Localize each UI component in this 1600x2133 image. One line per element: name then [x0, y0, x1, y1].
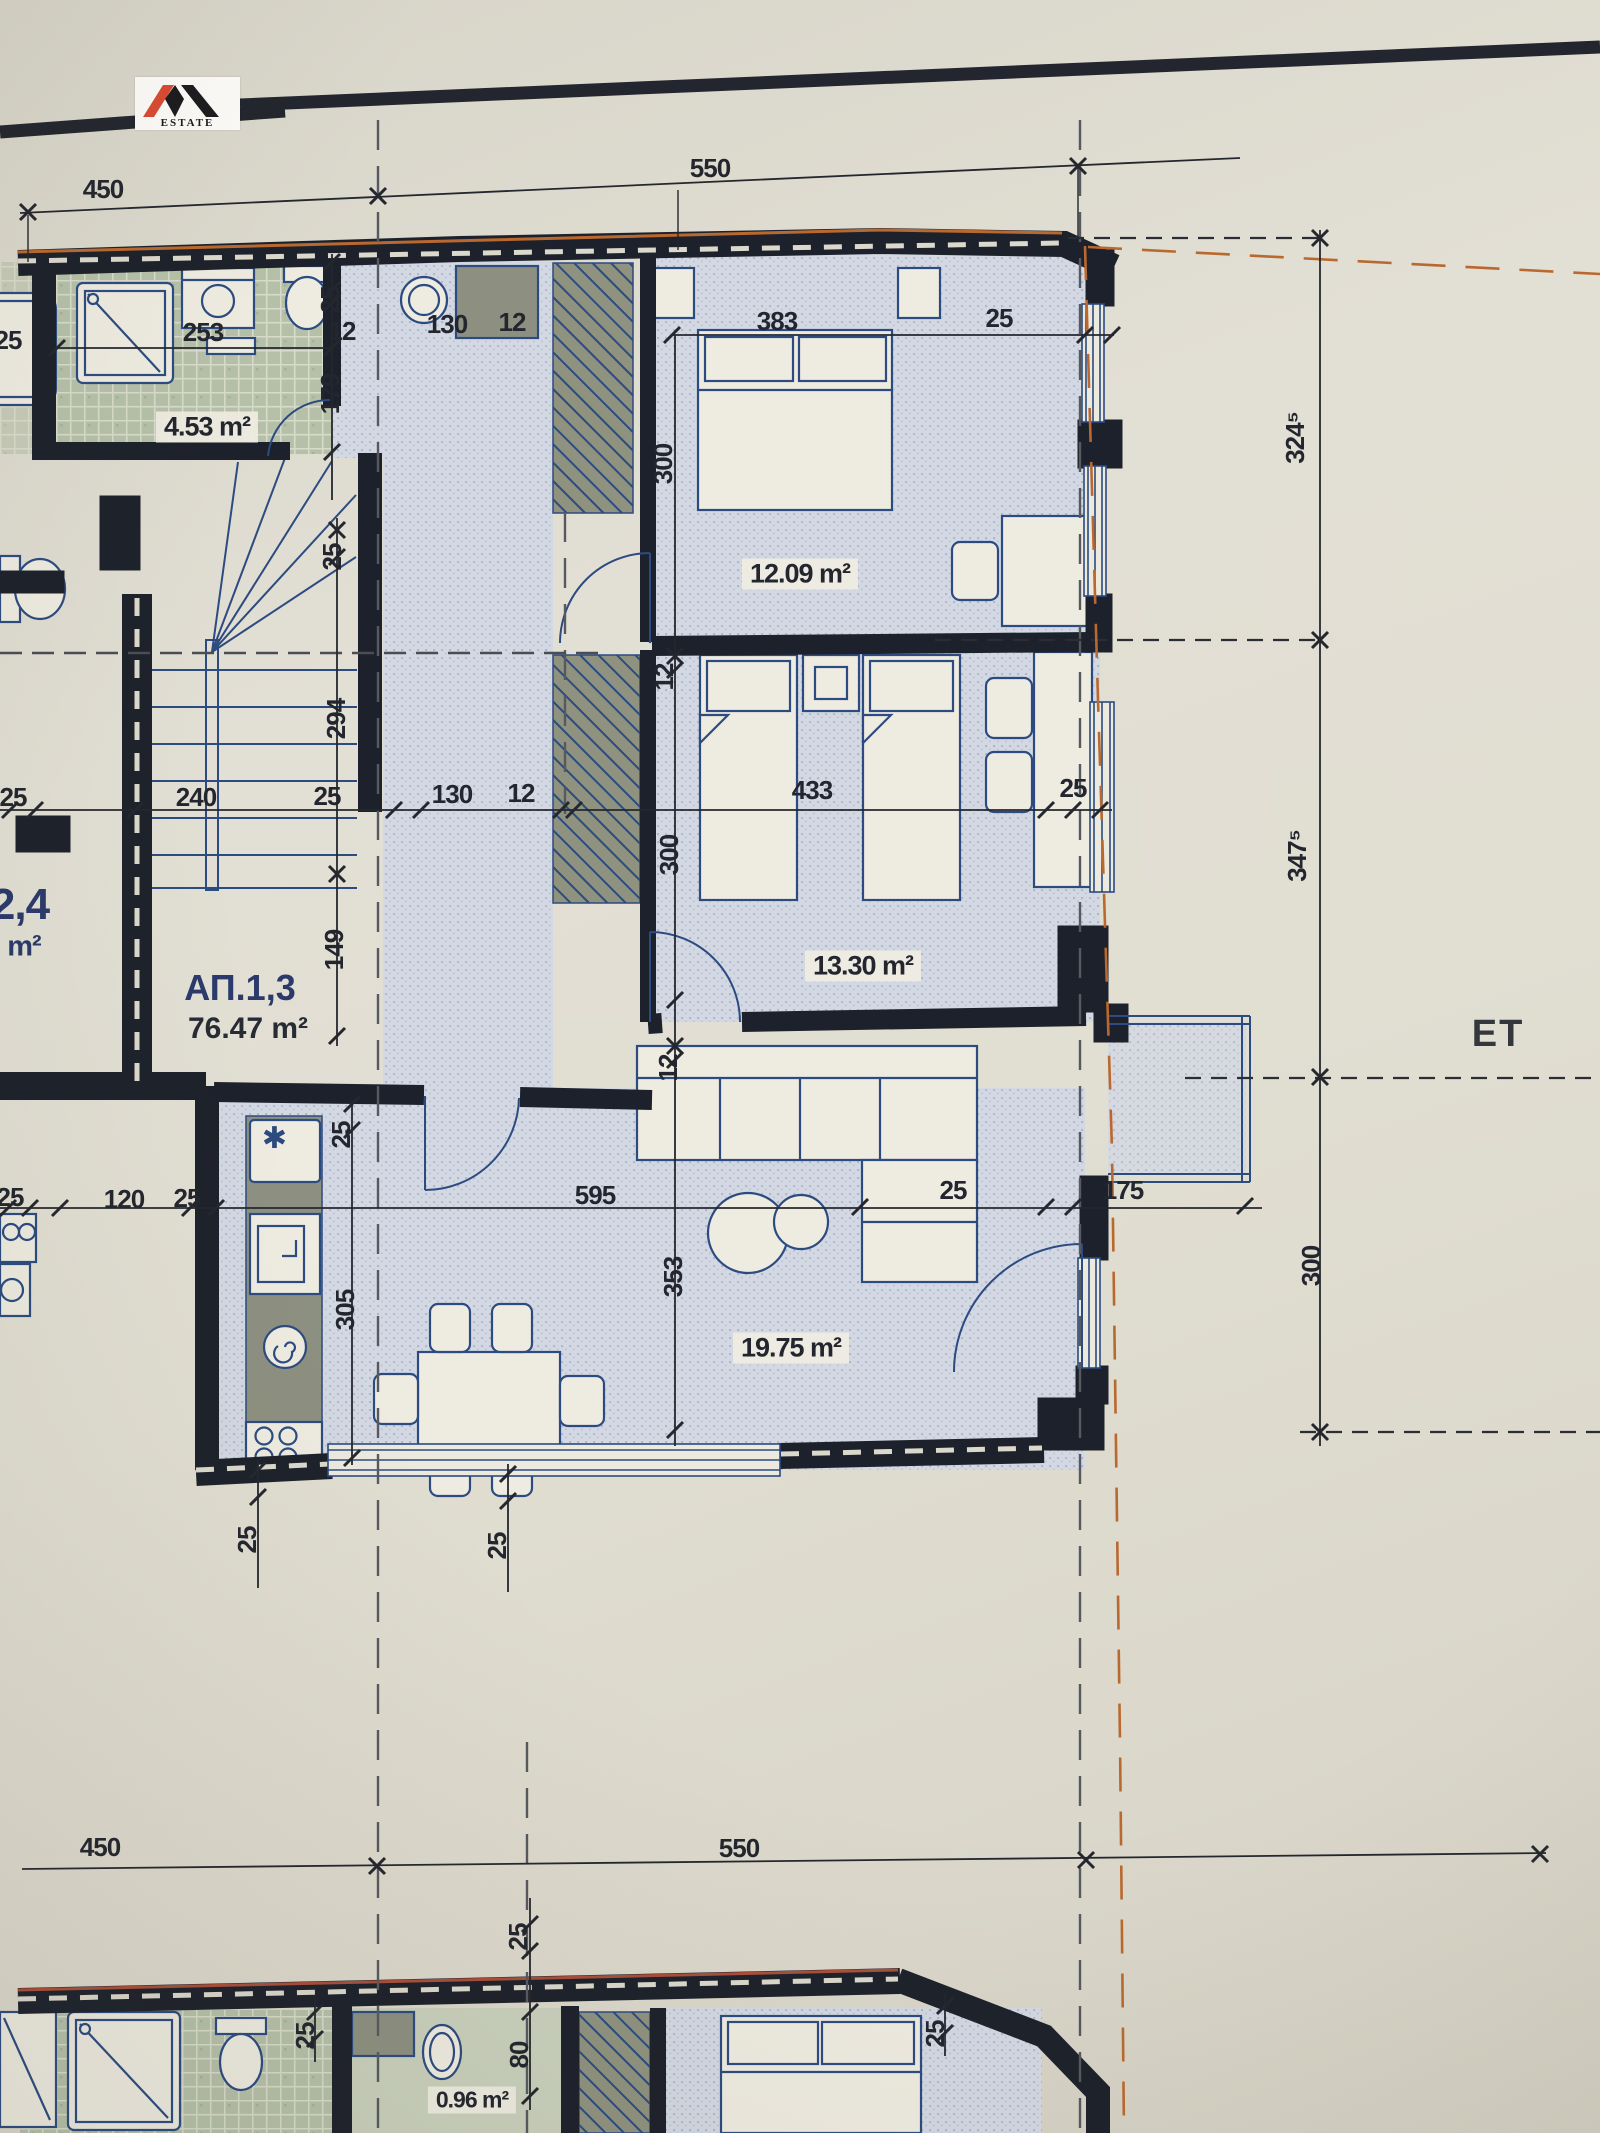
- apartment-id-label: АП.1,3: [184, 970, 295, 1006]
- dimension-label: 130: [432, 781, 472, 807]
- dimension-label: 25: [484, 1533, 510, 1560]
- floor-label: ЕТ: [1472, 1015, 1525, 1053]
- dimension-label: 179: [317, 374, 343, 414]
- floor-plan-photo: ESTATE 450550253251213012254.53 m²179383…: [0, 0, 1600, 2133]
- room-area-label: 13.30 m²: [805, 951, 921, 982]
- dimension-label: 240: [176, 784, 216, 810]
- room-area-label: 19.75 m²: [733, 1333, 849, 1364]
- dimension-label: 25: [0, 1184, 23, 1210]
- dimension-label: 300: [656, 835, 682, 875]
- dimension-label: 149: [321, 930, 347, 970]
- dimension-label: 12: [499, 309, 526, 335]
- dimension-label: 25: [1060, 775, 1087, 801]
- dimension-label: 550: [719, 1835, 759, 1861]
- dimension-label: 25: [940, 1177, 967, 1203]
- dimension-label: 175: [1103, 1177, 1143, 1203]
- dimension-label: 25: [0, 327, 21, 353]
- dimension-label: 130: [427, 311, 467, 337]
- dimension-label: 300: [650, 444, 676, 484]
- dimension-label: 25: [314, 783, 341, 809]
- dimension-label: 12: [651, 664, 677, 691]
- dimension-label: 300: [1298, 1246, 1324, 1286]
- room-area-label: 4.53 m²: [156, 412, 258, 443]
- dimension-label: 595: [575, 1182, 615, 1208]
- room-area-label: 12.09 m²: [742, 559, 858, 590]
- dimension-label: 25: [922, 2021, 948, 2048]
- dimension-label: 550: [690, 155, 730, 181]
- dimension-label: 25: [328, 1122, 354, 1149]
- dimension-label: 25: [234, 1527, 260, 1554]
- dimension-label: 433: [792, 777, 832, 803]
- dimension-label: 450: [80, 1834, 120, 1860]
- dimension-label: 305: [332, 1290, 358, 1330]
- dimension-label: 25: [0, 784, 26, 810]
- plan-labels: 450550253251213012254.53 m²1793832530012…: [0, 0, 1600, 2133]
- dimension-label: 253: [183, 319, 223, 345]
- apartment-area-label: 76.47 m²: [188, 1014, 308, 1044]
- dimension-label: 25: [319, 544, 345, 571]
- dimension-label: 294: [323, 699, 349, 739]
- dimension-label: 25: [986, 305, 1013, 331]
- room-area-label: 0.96 m²: [428, 2087, 516, 2114]
- dimension-label: 324⁵: [1282, 412, 1308, 464]
- dimension-label: 12: [508, 780, 535, 806]
- dimension-label: 25: [505, 1924, 531, 1951]
- dimension-label: 25: [174, 1185, 201, 1211]
- dimension-label: 12: [655, 1055, 681, 1082]
- neighbor-apartment-label: 2,4: [0, 883, 49, 927]
- dimension-label: 25: [292, 2023, 318, 2050]
- neighbor-apartment-unit: m²: [7, 933, 40, 962]
- dimension-label: 450: [83, 176, 123, 202]
- dimension-label: 353: [660, 1257, 686, 1297]
- fridge-icon: ✱: [262, 1124, 286, 1154]
- dimension-label: 120: [104, 1186, 144, 1212]
- dimension-label: 383: [757, 308, 797, 334]
- dimension-label: 80: [506, 2042, 532, 2069]
- dimension-label: 347⁵: [1284, 830, 1310, 882]
- dimension-label: 25: [317, 287, 343, 314]
- dimension-label: 12: [329, 318, 356, 344]
